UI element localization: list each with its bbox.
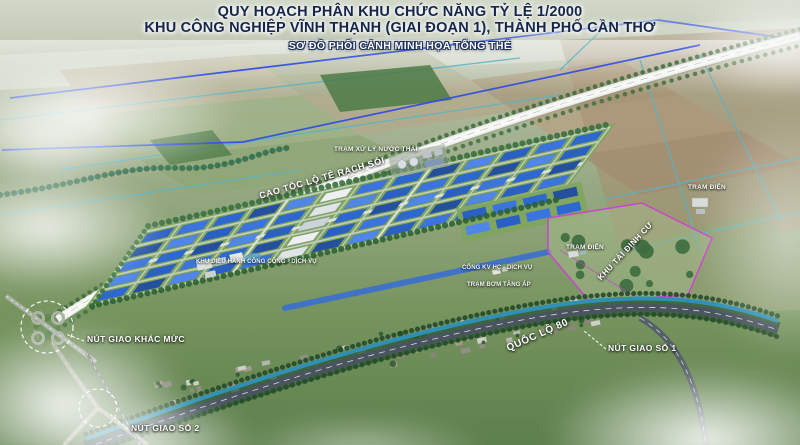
label-interchange-2: NÚT GIAO SỐ 2	[131, 423, 200, 433]
label-substation-central: TRẠM ĐIỆN	[566, 244, 604, 251]
label-admin-service-area: KHU ĐIỀU HÀNH CÔNG CỘNG - DỊCH VỤ	[196, 259, 317, 265]
title-subtitle: SƠ ĐỒ PHỐI CẢNH MINH HỌA TỔNG THỂ	[0, 38, 800, 54]
label-interchange-1: NÚT GIAO SỐ 1	[608, 343, 677, 353]
label-substation-east: TRẠM ĐIỆN	[688, 184, 726, 191]
label-service-gate: CỔNG KV HC - DỊCH VỤ	[462, 265, 532, 271]
label-booster-pump: TRẠM BƠM TĂNG ÁP	[467, 282, 531, 288]
title-block: QUY HOẠCH PHÂN KHU CHỨC NĂNG TỶ LỆ 1/200…	[0, 4, 800, 54]
masterplan-rendering: TRẠM XỬ LÝ NƯỚC THẢI CAO TỐC LỘ TẺ RẠCH …	[0, 0, 800, 445]
title-line-1: QUY HOẠCH PHÂN KHU CHỨC NĂNG TỶ LỆ 1/200…	[0, 4, 800, 20]
label-wastewater-plant: TRẠM XỬ LÝ NƯỚC THẢI	[334, 146, 418, 153]
label-grade-interchange: NÚT GIAO KHÁC MỨC	[87, 334, 185, 344]
title-line-2: KHU CÔNG NGHIỆP VĨNH THẠNH (GIAI ĐOẠN 1)…	[0, 20, 800, 36]
